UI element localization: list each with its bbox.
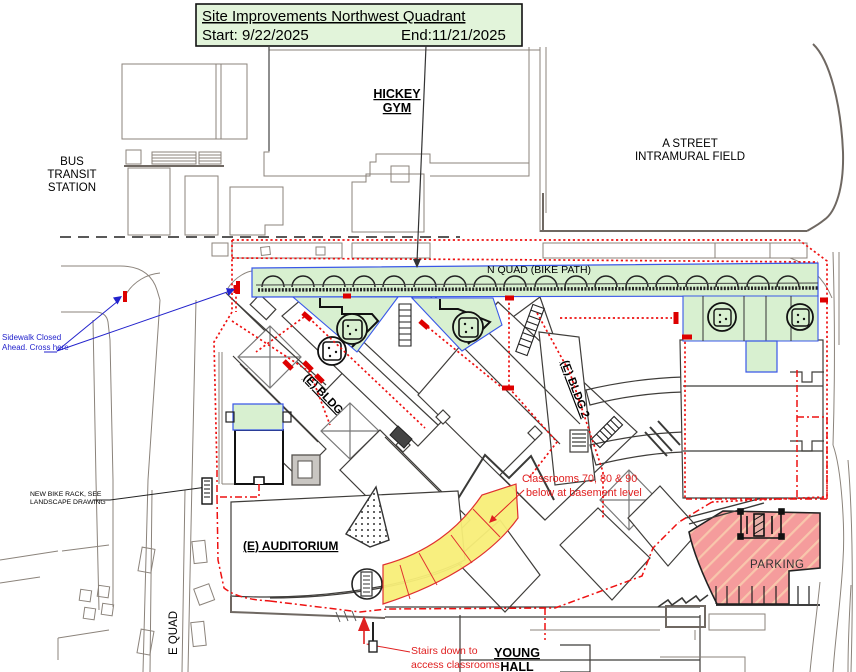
svg-text:NEW BIKE RACK, SEE: NEW BIKE RACK, SEE [30,491,102,498]
svg-text:(E) AUDITORIUM: (E) AUDITORIUM [243,539,338,553]
svg-text:HICKEY: HICKEY [373,87,421,101]
svg-text:E QUAD: E QUAD [168,611,180,655]
svg-text:Site Improvements Northwest Qu: Site Improvements Northwest Quadrant [202,8,466,25]
svg-text:below at basement level: below at basement level [526,487,642,499]
svg-text:access classrooms: access classrooms [411,659,500,671]
svg-text:INTRAMURAL FIELD: INTRAMURAL FIELD [635,151,745,163]
svg-text:YOUNG: YOUNG [494,646,540,660]
svg-text:Classrooms 70, 80 & 90: Classrooms 70, 80 & 90 [522,473,637,485]
svg-text:N QUAD (BIKE PATH): N QUAD (BIKE PATH) [487,264,591,276]
svg-text:Stairs down to: Stairs down to [411,645,478,657]
svg-text:A STREET: A STREET [662,138,718,150]
svg-text:PARKING: PARKING [750,559,804,571]
svg-text:STATION: STATION [48,182,96,194]
svg-text:BUS: BUS [60,156,84,168]
svg-text:Start: 9/22/2025: Start: 9/22/2025 [202,27,309,44]
svg-text:GYM: GYM [383,101,411,115]
svg-text:HALL: HALL [500,660,534,672]
svg-text:Sidewalk Closed: Sidewalk Closed [2,333,61,342]
svg-text:TRANSIT: TRANSIT [47,169,96,181]
svg-text:End:11/21/2025: End:11/21/2025 [401,27,506,44]
